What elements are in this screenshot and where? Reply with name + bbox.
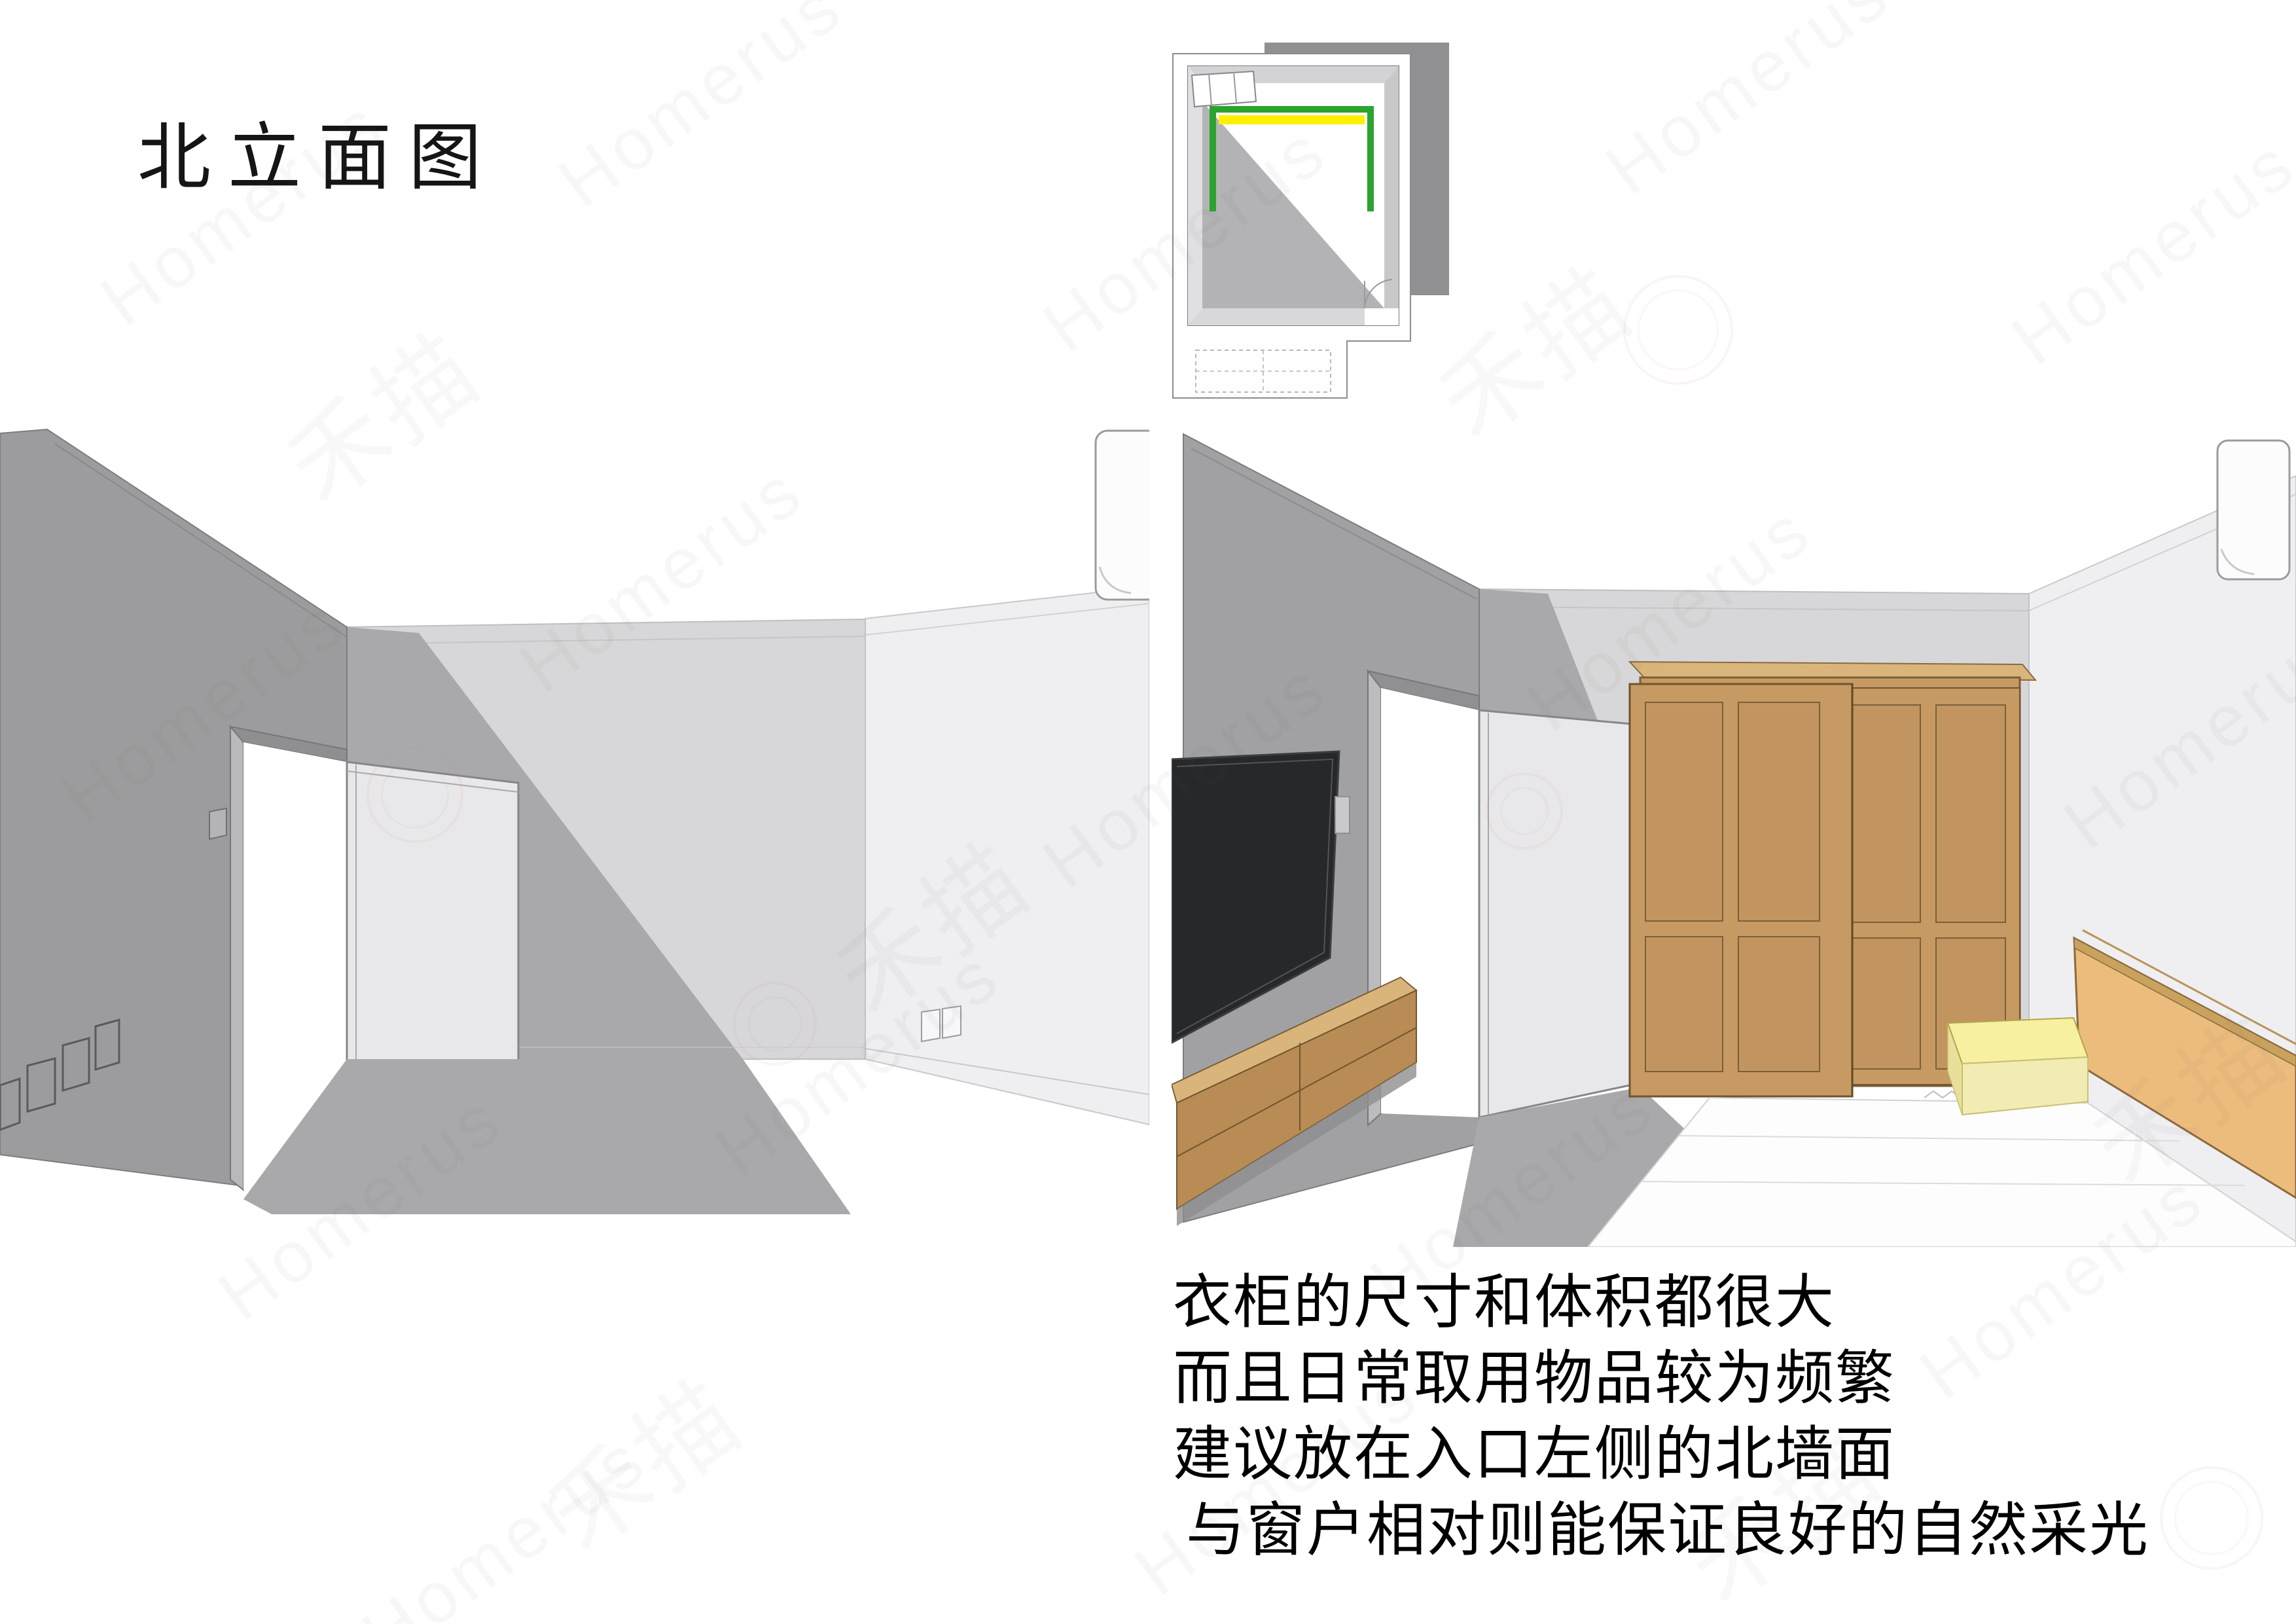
wardrobe-panel bbox=[1738, 937, 1820, 1072]
note-line: 与窗户相对则能保证良好的自然采光 bbox=[1173, 1492, 2149, 1568]
floor-shadow bbox=[243, 1059, 851, 1214]
light-switch bbox=[209, 808, 226, 839]
air-conditioner bbox=[1096, 431, 1149, 600]
wall-outlet bbox=[922, 1009, 940, 1041]
annotation-text: 衣柜的尺寸和体积都很大 而且日常取用物品较为频繁 建议放在入口左侧的北墙面 与窗… bbox=[1173, 1265, 2149, 1568]
note-line: 而且日常取用物品较为频繁 bbox=[1173, 1341, 2149, 1416]
note-line: 衣柜的尺寸和体积都很大 bbox=[1173, 1265, 2149, 1341]
tv-wall-mount bbox=[1335, 797, 1350, 833]
wardrobe-panel bbox=[1645, 702, 1723, 921]
door-leaf bbox=[1479, 710, 1639, 1117]
air-conditioner bbox=[2217, 441, 2289, 579]
floor-plan-thumbnail bbox=[1168, 23, 1456, 406]
watermark-ring bbox=[1623, 275, 1733, 385]
door-jamb bbox=[230, 727, 243, 1190]
page-title: 北立面图 bbox=[137, 98, 499, 204]
note-line: 建议放在入口左侧的北墙面 bbox=[1173, 1416, 2149, 1492]
wardrobe-panel bbox=[1850, 938, 1920, 1069]
wardrobe-panel bbox=[1645, 937, 1723, 1072]
wardrobe-panel bbox=[1850, 705, 1920, 922]
plan-wall-right bbox=[1384, 66, 1399, 325]
presentation-page: 北立面图 bbox=[0, 0, 2296, 1624]
watermark-text: Homerus bbox=[348, 1417, 662, 1624]
watermark-text: Homerus bbox=[1997, 121, 2296, 382]
render-empty-room bbox=[0, 419, 1149, 1214]
plan-window bbox=[1192, 71, 1256, 107]
nightstand-top bbox=[1948, 1018, 2088, 1064]
wardrobe-panel bbox=[1738, 702, 1820, 921]
render-furnished-room bbox=[1172, 403, 2296, 1247]
watermark-ring bbox=[2160, 1466, 2263, 1570]
watermark-text: Homerus bbox=[1591, 0, 1906, 211]
right-wall bbox=[865, 586, 1149, 1125]
watermark-logo: 禾描 bbox=[515, 1340, 768, 1578]
wardrobe-panel bbox=[1936, 705, 2005, 922]
watermark-text: Homerus bbox=[544, 0, 859, 224]
plan-highlight-yellow-wardrobe bbox=[1219, 115, 1365, 124]
wall-outlet bbox=[942, 1006, 961, 1038]
plan-entry-threshold bbox=[1365, 308, 1399, 325]
